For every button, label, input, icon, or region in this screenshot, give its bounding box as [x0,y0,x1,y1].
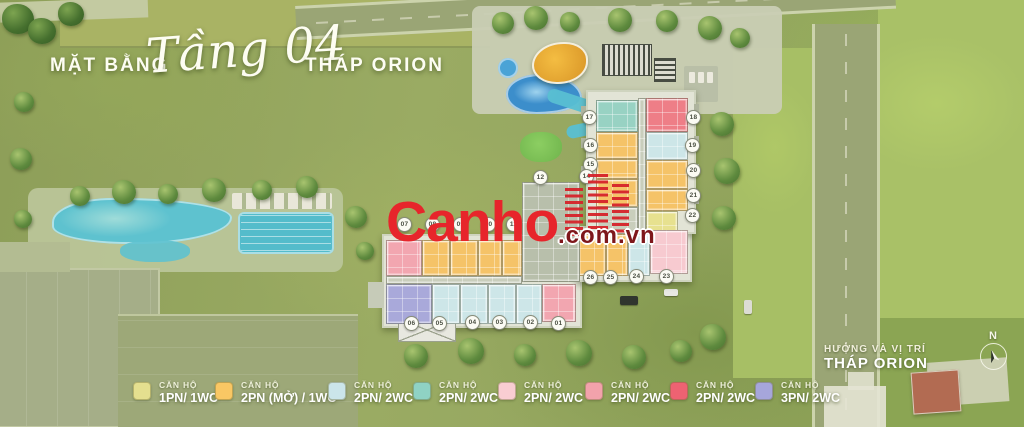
legend-item: CĂN HỘ1PN/ 1WC [133,380,218,405]
watermark-domain: .com.vn [558,222,656,250]
unit-number-01: 01 [551,316,566,331]
legend-swatch [413,382,431,400]
plan-area [386,276,522,284]
tree [514,344,536,366]
tree [356,242,374,260]
unit-number-05: 05 [432,316,447,331]
tree [202,178,226,202]
legend-category-label: CĂN HỘ [611,380,670,390]
tree [158,184,178,204]
legend-unit-type: 2PN (MỞ) / 1WC [241,391,336,405]
tree [458,338,484,364]
plan-area [638,98,646,234]
legend-category-label: CĂN HỘ [159,380,218,390]
tree [712,206,736,230]
legend-category-label: CĂN HỘ [524,380,583,390]
unit-number-18: 18 [686,110,701,125]
tree [252,180,272,200]
unit-number-02: 02 [523,315,538,330]
legend-category-label: CĂN HỘ [354,380,413,390]
legend-category-label: CĂN HỘ [696,380,755,390]
tree [492,12,514,34]
legend-category-label: CĂN HỘ [781,380,840,390]
tree [14,210,32,228]
legend-item: CĂN HỘ2PN (MỞ) / 1WC [215,380,336,405]
unit-number-26: 26 [583,270,598,285]
legend-unit-type: 2PN/ 2WC [696,391,755,405]
legend-swatch [670,382,688,400]
legend-item: CĂN HỘ2PN/ 2WC [328,380,413,405]
unit-number-25: 25 [603,270,618,285]
legend-category-label: CĂN HỘ [439,380,498,390]
site-plan-poster: 1716151418192021222625242312070809101106… [0,0,1024,427]
unit-number-17: 17 [582,110,597,125]
tree [608,8,632,32]
legend-category-label: CĂN HỘ [241,380,336,390]
legend-unit-type: 2PN/ 2WC [524,391,583,405]
unit-number-21: 21 [686,188,701,203]
tree [14,92,34,112]
watermark-brand: Canho [386,194,558,251]
legend-unit-type: 2PN/ 2WC [611,391,670,405]
tree [700,324,726,350]
unit-20 [646,160,688,189]
location-note-line1: HƯỚNG VÀ VỊ TRÍ [824,344,928,355]
unit-number-23: 23 [659,269,674,284]
compass-north-label: N [974,330,1012,342]
tree [698,16,722,40]
legend-item: CĂN HỘ2PN/ 2WC [670,380,755,405]
unit-19 [646,132,688,160]
compass-needle-icon [981,345,1005,369]
legend-swatch [215,382,233,400]
tree [404,344,428,368]
unit-number-20: 20 [686,163,701,178]
unit-16 [596,132,638,159]
compass-ring [980,343,1007,370]
tree [656,10,678,32]
legend-item: CĂN HỘ2PN/ 2WC [585,380,670,405]
legend: CĂN HỘ1PN/ 1WCCĂN HỘ2PN (MỞ) / 1WCCĂN HỘ… [0,378,1024,422]
tree [58,2,84,26]
tree [560,12,580,32]
tree [670,340,692,362]
unit-number-24: 24 [629,269,644,284]
unit-number-04: 04 [465,315,480,330]
legend-unit-type: 3PN/ 2WC [781,391,840,405]
tree [296,176,318,198]
tree [622,345,646,369]
unit-number-22: 22 [685,208,700,223]
unit-18 [646,98,688,132]
legend-item: CĂN HỘ2PN/ 2WC [498,380,583,405]
title-tower-name: THÁP ORION [305,55,444,77]
legend-swatch [498,382,516,400]
tree [714,158,740,184]
legend-item: CĂN HỘ2PN/ 2WC [413,380,498,405]
legend-item: CĂN HỘ3PN/ 2WC [755,380,840,405]
tree [566,340,592,366]
tree [10,148,32,170]
unit-number-19: 19 [685,138,700,153]
legend-swatch [585,382,603,400]
location-note-line2: THÁP ORION [824,355,928,372]
legend-swatch [755,382,773,400]
unit-17 [596,100,638,132]
legend-unit-type: 2PN/ 2WC [354,391,413,405]
unit-number-12: 12 [533,170,548,185]
unit-number-16: 16 [583,138,598,153]
legend-swatch [133,382,151,400]
legend-unit-type: 2PN/ 2WC [439,391,498,405]
page-title: MẶT BẰNG Tầng 04 THÁP ORION [48,28,448,98]
tree [524,6,548,30]
unit-number-06: 06 [404,316,419,331]
unit-21 [646,189,688,211]
tree [730,28,750,48]
unit-number-03: 03 [492,315,507,330]
legend-unit-type: 1PN/ 1WC [159,391,218,405]
tree [112,180,136,204]
legend-swatch [328,382,346,400]
tree [345,206,367,228]
tree [70,186,90,206]
tree [710,112,734,136]
compass: N [974,330,1012,376]
location-note: HƯỚNG VÀ VỊ TRÍ THÁP ORION [824,344,928,372]
